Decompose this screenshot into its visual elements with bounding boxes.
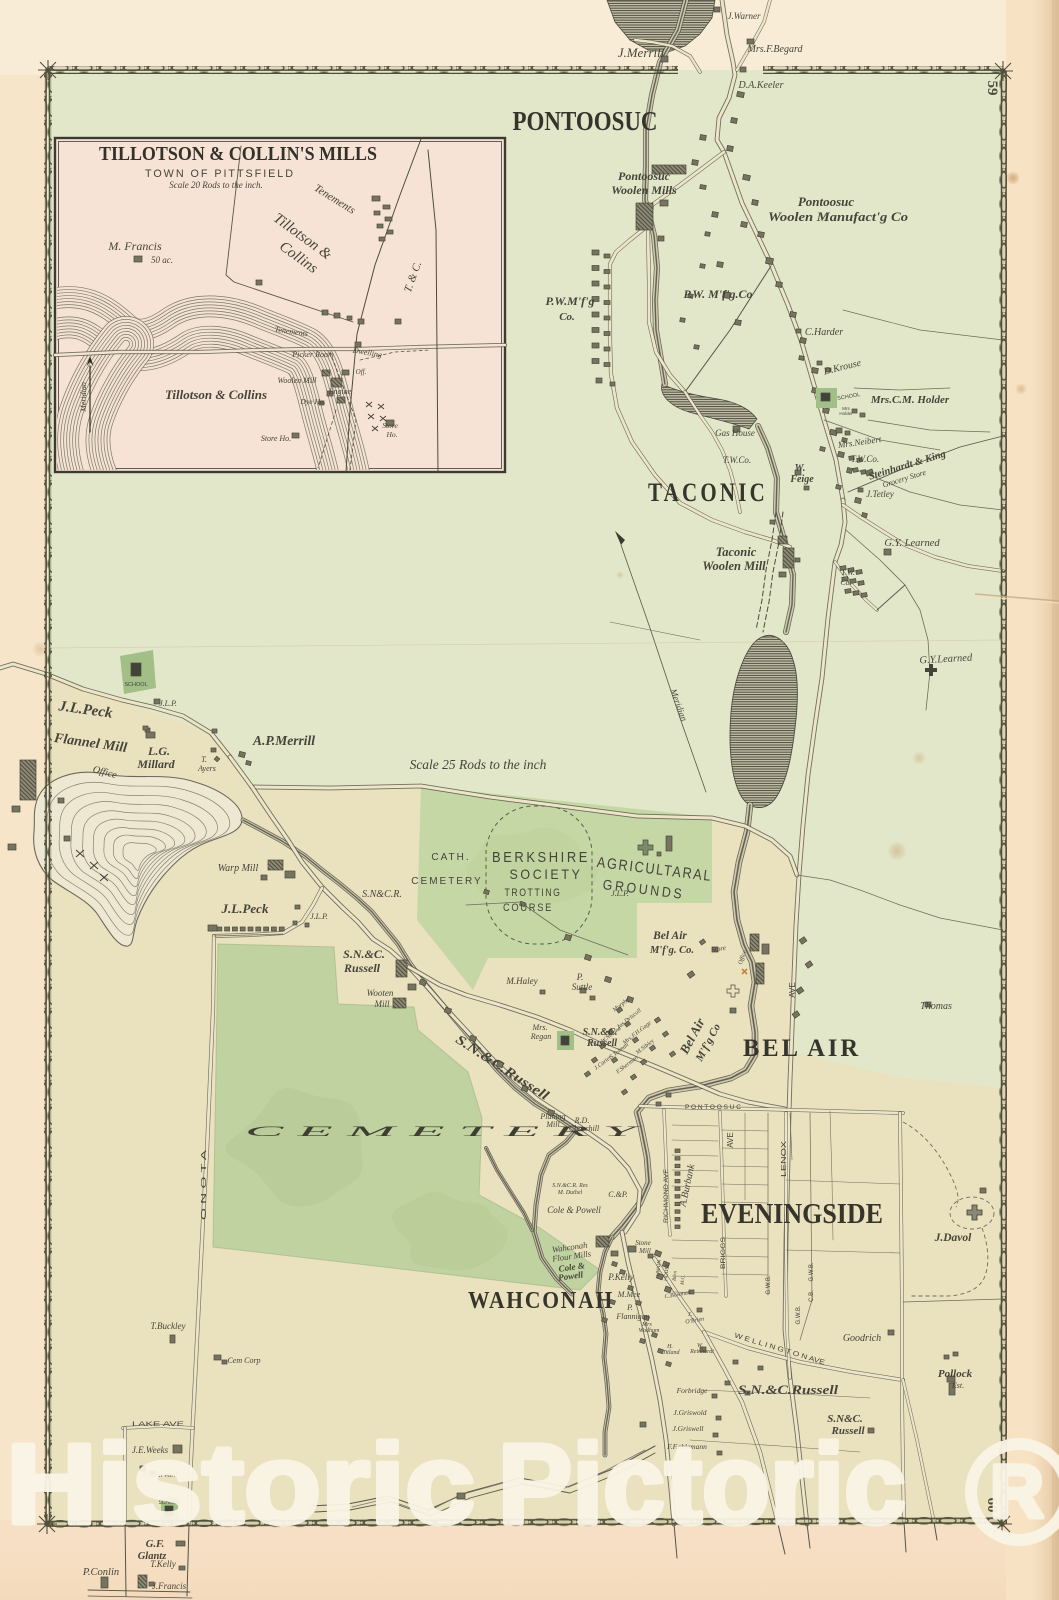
svg-text:Woolen Mill: Woolen Mill [277,376,317,385]
svg-text:J.Tetley: J.Tetley [866,489,893,499]
svg-text:T.W.Co.: T.W.Co. [851,454,879,464]
svg-text:Gas House: Gas House [715,428,755,438]
svg-text:Goodrich: Goodrich [843,1333,881,1344]
svg-text:BEL AIR: BEL AIR [743,1035,861,1062]
svg-text:J.L.P.: J.L.P. [611,889,629,898]
svg-text:O N O T A: O N O T A [201,1149,208,1220]
svg-text:J.Griswold: J.Griswold [673,1408,706,1417]
svg-text:Cole & Powell: Cole & Powell [547,1205,601,1215]
svg-text:T.W.: T.W. [841,568,855,577]
svg-text:T.Buckley: T.Buckley [150,1321,185,1331]
svg-text:J.L.Peck: J.L.Peck [221,901,269,916]
svg-text:TACONIC: TACONIC [648,478,768,507]
svg-text:P.: P. [626,1303,633,1312]
svg-text:Reinhardt: Reinhardt [689,1349,714,1355]
svg-text:Co.: Co. [840,578,851,587]
svg-text:Ayers: Ayers [197,764,216,773]
svg-text:M.C.: M.C. [680,1275,686,1286]
svg-text:Picker Room: Picker Room [291,350,334,359]
svg-text:SCHOOL: SCHOOL [124,682,147,688]
svg-text:J.Warner: J.Warner [728,11,761,21]
svg-text:Scale 20 Rods to the inch.: Scale 20 Rods to the inch. [169,180,262,190]
svg-text:M. Duthel: M. Duthel [557,1190,583,1196]
svg-text:G.Y. Learned: G.Y. Learned [884,538,940,549]
svg-text:J.Francis: J.Francis [152,1581,187,1591]
svg-text:CATH.: CATH. [431,852,470,863]
svg-text:A.P.Merrill: A.P.Merrill [252,733,315,748]
svg-text:P.: P. [576,972,584,982]
svg-text:P.W.M'f'g: P.W.M'f'g [546,294,595,308]
svg-text:C.Harder: C.Harder [805,327,843,338]
svg-text:Meridian: Meridian [79,382,88,413]
svg-text:Store: Store [382,421,398,430]
svg-text:M. Francis: M. Francis [107,239,162,253]
svg-text:BRIGGS: BRIGGS [720,1236,727,1269]
svg-text:Woolen Mill: Woolen Mill [702,559,766,573]
svg-text:EVENINGSIDE: EVENINGSIDE [701,1199,883,1230]
svg-text:Warp Mill: Warp Mill [218,863,259,874]
svg-text:Russell: Russell [343,961,381,975]
svg-text:Co.: Co. [559,311,575,323]
svg-text:PONTOOSUC: PONTOOSUC [513,106,658,136]
svg-text:W.: W. [795,463,806,474]
svg-text:Pontoosuc: Pontoosuc [798,194,855,209]
svg-text:Engine: Engine [328,387,352,396]
svg-text:Woolen Manufact'g Co: Woolen Manufact'g Co [768,209,909,224]
svg-text:Pollock: Pollock [938,1368,973,1380]
svg-text:D.A.Keeler: D.A.Keeler [738,80,784,91]
svg-text:R: R [990,1450,1043,1533]
svg-text:Titland: Titland [662,1350,680,1356]
svg-text:TOWN OF PITTSFIELD: TOWN OF PITTSFIELD [145,168,295,180]
svg-text:S.N.&C.: S.N.&C. [343,947,385,961]
svg-text:T.: T. [201,755,207,764]
svg-text:Regan: Regan [530,1032,551,1041]
svg-text:Taconic: Taconic [716,545,757,559]
svg-text:RICHMOND AVE: RICHMOND AVE [663,1168,670,1223]
svg-text:Dye Ho.: Dye Ho. [300,397,326,406]
svg-text:M.Haley: M.Haley [505,976,537,986]
svg-text:Forbridge: Forbridge [676,1386,709,1395]
svg-text:S.N.&C.R. Res: S.N.&C.R. Res [552,1183,588,1189]
svg-text:C.B.: C.B. [809,1290,815,1302]
svg-text:Tillotson & Collins: Tillotson & Collins [165,387,267,402]
svg-text:Mill: Mill [374,999,390,1009]
svg-text:L.G.: L.G. [147,744,170,758]
svg-text:T.Kelly: T.Kelly [150,1559,176,1569]
svg-text:50 ac.: 50 ac. [151,255,173,265]
svg-text:Mrs.: Mrs. [532,1023,548,1032]
svg-text:Suttle: Suttle [572,982,593,992]
svg-text:Store Ho.: Store Ho. [261,434,291,443]
svg-text:G.W.B.: G.W.B. [809,1262,815,1281]
svg-text:Pictoric: Pictoric [498,1421,906,1547]
svg-text:Mrs.F.Begard: Mrs.F.Begard [747,44,804,55]
svg-text:Wadham: Wadham [639,1328,660,1334]
svg-text:Mill: Mill [545,1120,560,1129]
svg-text:J.Merrill: J.Merrill [618,45,665,60]
svg-text:Barn: Barn [673,1270,679,1281]
svg-text:Feige: Feige [789,474,814,485]
svg-text:AVE: AVE [726,1132,735,1147]
svg-text:LENOX: LENOX [781,1141,788,1177]
svg-text:59: 59 [984,81,1000,96]
svg-text:J.L.P.: J.L.P. [310,912,328,921]
svg-text:BERKSHIRE: BERKSHIRE [492,849,590,866]
svg-text:COURSE: COURSE [503,902,553,914]
svg-text:Woolen Mills: Woolen Mills [611,183,677,197]
svg-text:Bel Air: Bel Air [652,930,687,942]
svg-text:Mill: Mill [638,1247,651,1255]
svg-text:J.L.P.: J.L.P. [159,699,177,708]
svg-text:P.Kelly: P.Kelly [607,1272,634,1282]
svg-text:Est.: Est. [951,1381,964,1390]
svg-text:J.: J. [688,1312,692,1318]
svg-text:S.N&C.R.: S.N&C.R. [362,889,402,900]
svg-text:G.W.B.: G.W.B. [766,1275,772,1294]
svg-text:WAHCONAH: WAHCONAH [468,1288,614,1314]
svg-text:P O N T O O S U C: P O N T O O S U C [685,1104,741,1111]
svg-text:Ho.: Ho. [385,430,397,439]
svg-text:C.&P.: C.&P. [608,1190,627,1199]
svg-text:M.Mee: M.Mee [617,1290,641,1299]
svg-text:T.W.Co.: T.W.Co. [723,455,751,465]
svg-text:P.W. M'f'g.Co: P.W. M'f'g.Co [684,287,753,301]
svg-text:Mrs.C.M. Holder: Mrs.C.M. Holder [870,394,950,406]
svg-text:P.Conlin: P.Conlin [82,1567,119,1578]
svg-text:Stone: Stone [635,1239,651,1247]
svg-text:TILLOTSON & COLLIN'S MILLS: TILLOTSON & COLLIN'S MILLS [99,143,377,165]
svg-text:Wooten: Wooten [367,988,394,998]
svg-text:Holder: Holder [839,411,853,416]
svg-text:Cem Corp: Cem Corp [227,1356,260,1365]
svg-text:Thomas: Thomas [920,1001,952,1012]
svg-text:Historic: Historic [6,1421,475,1547]
svg-text:SOCIETY: SOCIETY [510,866,583,882]
svg-text:S.N.&C.Russell: S.N.&C.Russell [738,1383,839,1397]
svg-text:Pontoosuc: Pontoosuc [618,169,671,183]
svg-text:Flannigan: Flannigan [615,1312,649,1321]
svg-text:J.Davol: J.Davol [934,1232,973,1244]
svg-text:AVE: AVE [788,982,797,997]
svg-text:Off.: Off. [356,368,367,376]
svg-text:Scale 25 Rods to the inch: Scale 25 Rods to the inch [410,757,547,772]
svg-text:M'f'g. Co.: M'f'g. Co. [649,945,694,956]
svg-text:Churchill: Churchill [569,1124,600,1133]
svg-text:Millard: Millard [136,757,175,771]
svg-text:G.W.B.: G.W.B. [796,1305,802,1324]
svg-text:TROTTING: TROTTING [505,887,562,899]
svg-text:CEMETERY: CEMETERY [411,876,482,887]
